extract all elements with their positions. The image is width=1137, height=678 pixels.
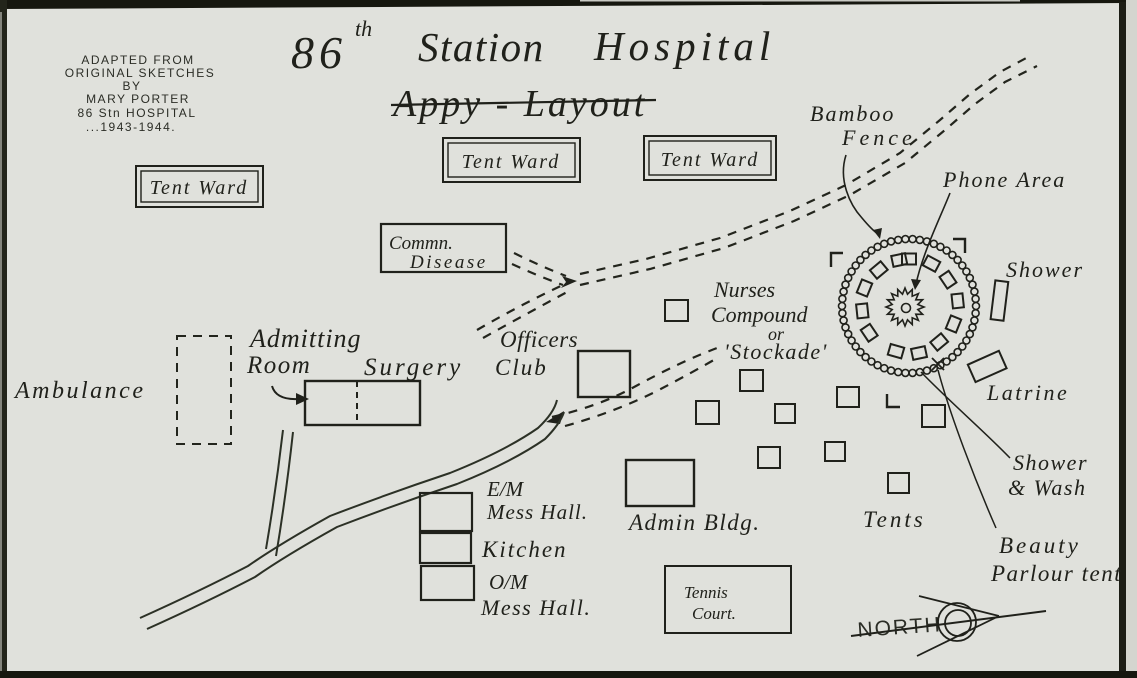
svg-text:Tents: Tents (863, 507, 926, 532)
svg-text:Shower: Shower (1006, 257, 1084, 282)
svg-text:Shower: Shower (1013, 450, 1088, 475)
svg-text:Tent Ward: Tent Ward (462, 151, 561, 173)
svg-text:Surgery: Surgery (364, 354, 463, 381)
svg-text:O/M: O/M (489, 570, 529, 594)
svg-text:Station: Station (418, 24, 545, 70)
svg-text:Kitchen: Kitchen (481, 537, 568, 562)
svg-text:Tent Ward: Tent Ward (150, 177, 249, 199)
svg-text:Mess Hall.: Mess Hall. (480, 595, 591, 620)
svg-text:ADAPTED FROM: ADAPTED FROM (81, 53, 194, 67)
svg-text:86 Stn HOSPITAL: 86 Stn HOSPITAL (78, 106, 197, 120)
svg-text:Disease: Disease (409, 252, 488, 273)
svg-text:Hospital: Hospital (593, 23, 775, 69)
svg-text:Ambulance: Ambulance (13, 378, 145, 404)
svg-text:Officers: Officers (500, 327, 578, 352)
svg-text:Latrine: Latrine (986, 380, 1069, 405)
svg-text:Compound: Compound (711, 302, 809, 327)
svg-text:'Stockade': 'Stockade' (724, 339, 828, 364)
svg-text:Fence: Fence (841, 125, 916, 150)
svg-text:Nurses: Nurses (713, 277, 775, 302)
svg-text:Parlour tent: Parlour tent (990, 561, 1122, 586)
svg-text:Tennis: Tennis (684, 583, 728, 602)
svg-text:...1943-1944.: ...1943-1944. (86, 120, 176, 134)
svg-text:Club: Club (495, 355, 548, 380)
svg-text:Admin Bldg.: Admin Bldg. (627, 510, 761, 535)
svg-text:86: 86 (291, 27, 347, 78)
svg-text:Beauty: Beauty (999, 533, 1081, 558)
svg-text:Phone Area: Phone Area (942, 167, 1066, 192)
svg-text:ORIGINAL SKETCHES: ORIGINAL SKETCHES (65, 66, 215, 80)
svg-text:Admitting: Admitting (248, 324, 362, 353)
svg-text:Bamboo: Bamboo (810, 101, 895, 126)
svg-text:MARY PORTER: MARY PORTER (86, 92, 190, 106)
svg-text:& Wash: & Wash (1008, 475, 1086, 500)
svg-text:Commn.: Commn. (389, 233, 453, 254)
svg-text:BY: BY (122, 79, 141, 93)
svg-text:th: th (355, 16, 372, 41)
svg-text:Room: Room (246, 352, 311, 379)
svg-text:Court.: Court. (692, 604, 736, 623)
svg-text:E/M: E/M (486, 477, 525, 501)
svg-text:Mess Hall.: Mess Hall. (486, 500, 588, 524)
svg-text:Tent Ward: Tent Ward (661, 149, 760, 171)
